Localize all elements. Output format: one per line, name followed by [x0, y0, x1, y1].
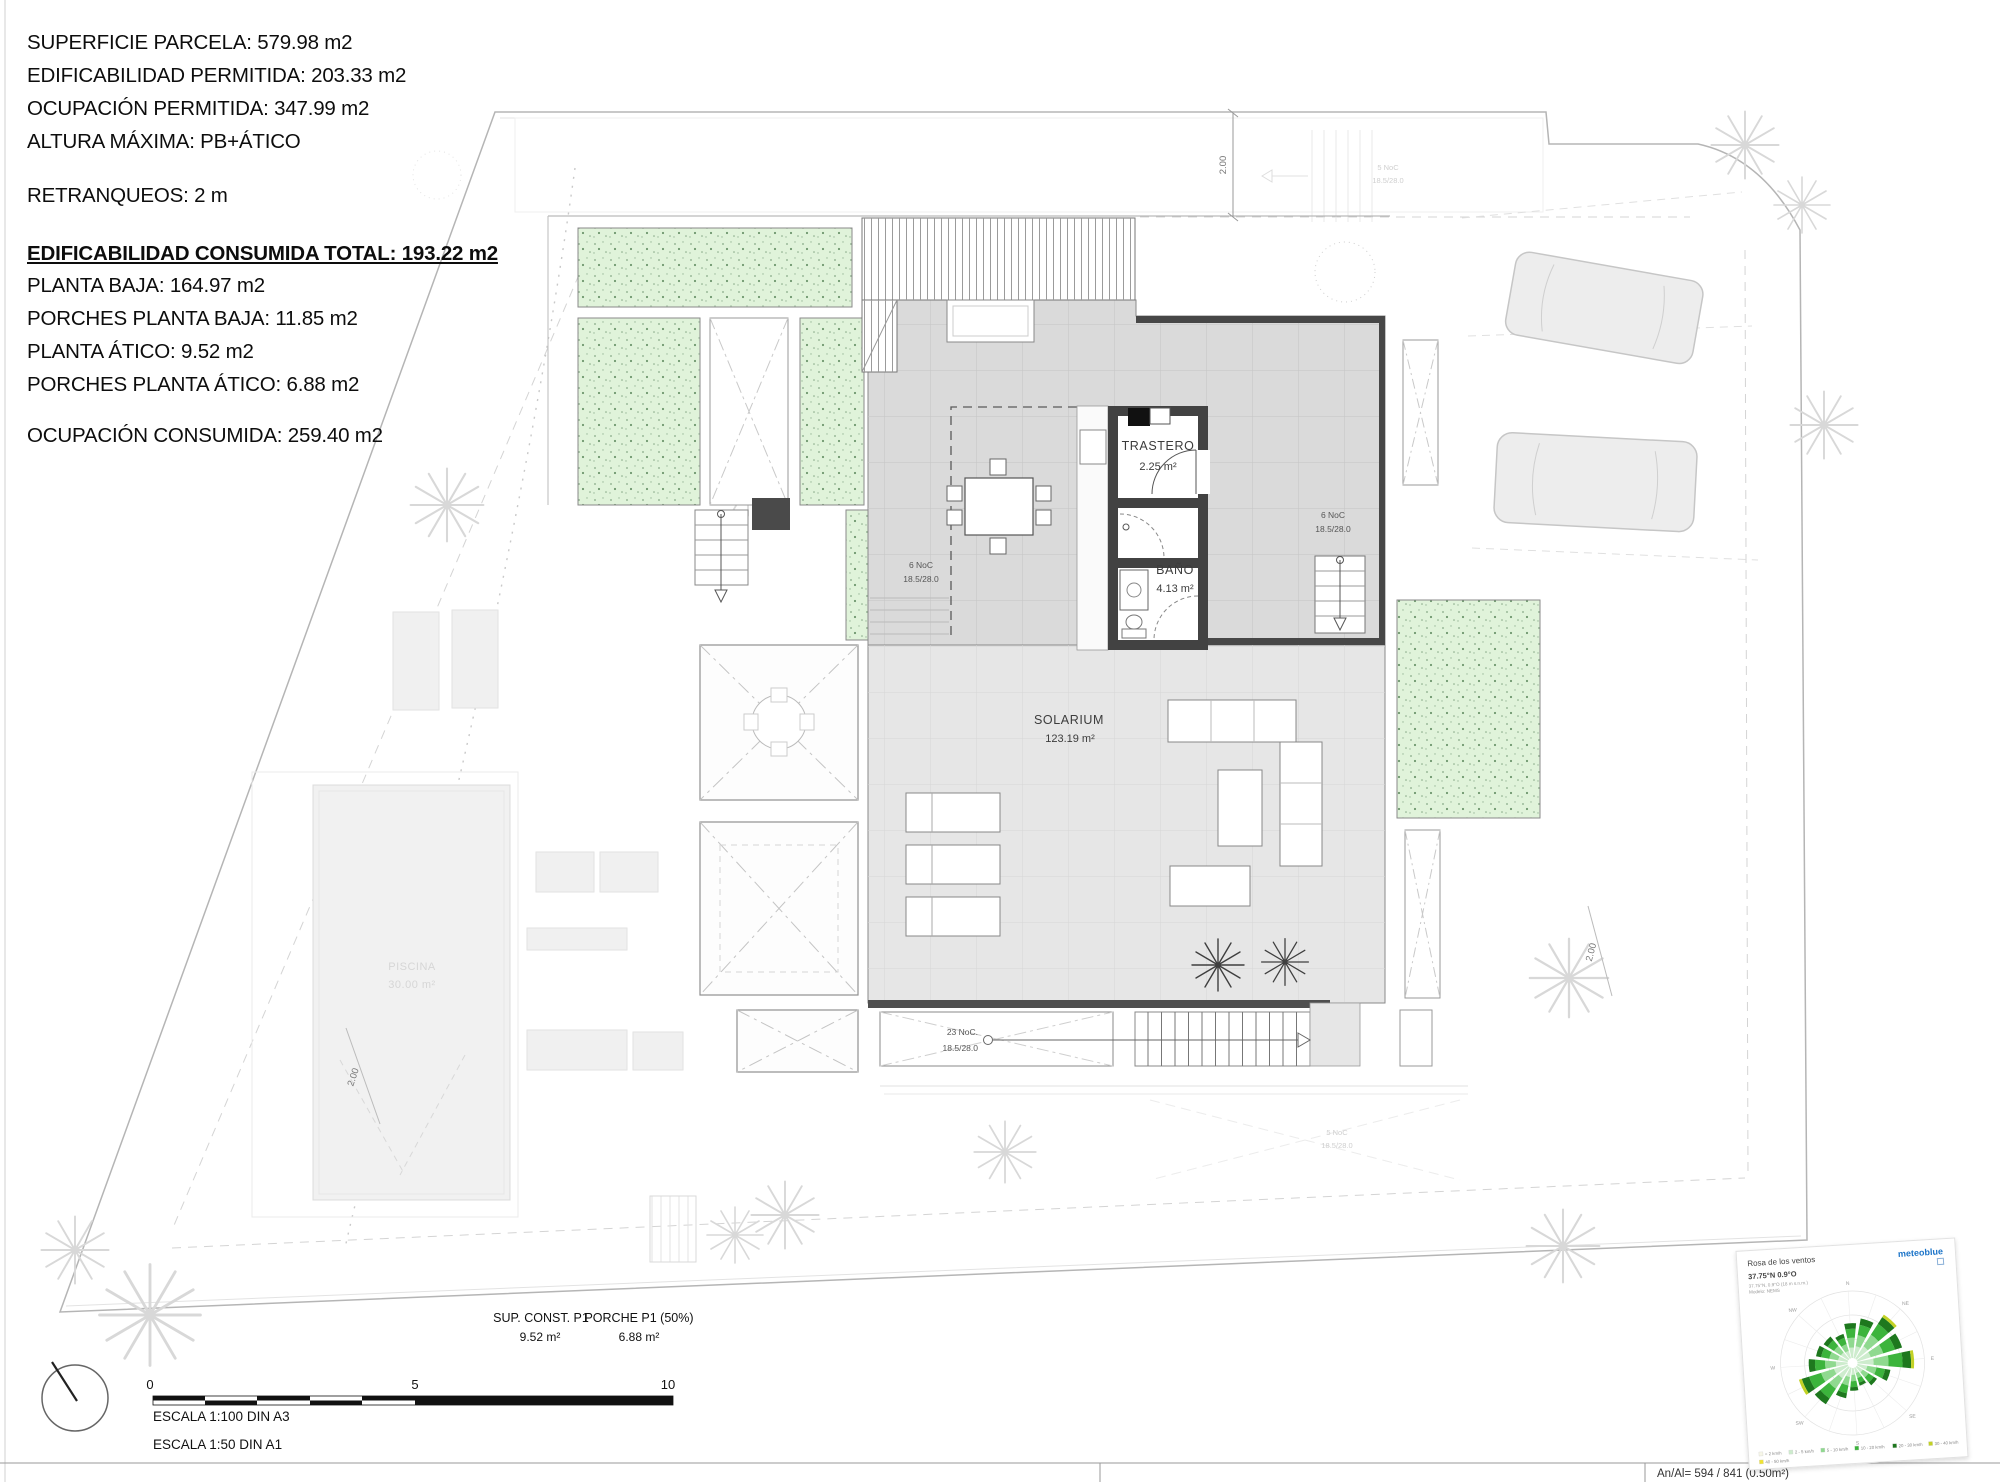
chimney-box [752, 498, 790, 530]
dim-label: 2.00 [1218, 156, 1229, 175]
round-table [752, 695, 806, 749]
info-line: PORCHES PLANTA BAJA: 11.85 m2 [27, 307, 358, 331]
info-line-total: EDIFICABILIDAD CONSUMIDA TOTAL: 193.22 m… [27, 242, 498, 266]
windrose-petal-band [1851, 1374, 1857, 1381]
planter [800, 318, 864, 505]
windrose-petal-band [1847, 1338, 1855, 1348]
trastero-label: TRASTERO [1122, 439, 1195, 453]
car [1493, 432, 1697, 532]
windrose-petal-band [1873, 1355, 1889, 1367]
windrose-coords: 37.75°N 0.9°O [1748, 1269, 1797, 1281]
info-line: PORCHES PLANTA ÁTICO: 6.88 m2 [27, 373, 359, 397]
stair-right [1315, 556, 1365, 633]
stair-left-steps-label: 6 NoC [909, 560, 933, 570]
escala-a1-label: ESCALA 1:50 DIN A1 [153, 1437, 282, 1452]
legend-label: 10 - 20 km/h [1861, 1444, 1886, 1450]
stair-right-riser-label: 18.5/28.0 [1315, 524, 1351, 534]
pool-area [252, 772, 518, 1217]
windrose-petal-band [1844, 1323, 1856, 1330]
ground-stair-steps-label: 5 NoC [1377, 163, 1399, 172]
car [1503, 250, 1705, 366]
planter [846, 510, 868, 640]
compass-label: SE [1909, 1414, 1917, 1420]
north-arrow-icon [42, 1362, 108, 1431]
legend-swatch [1893, 1444, 1897, 1448]
scale-tick-0: 0 [146, 1377, 153, 1392]
planter [578, 228, 852, 307]
escala-a3-label: ESCALA 1:100 DIN A3 [153, 1409, 290, 1424]
scale-tick-10: 10 [661, 1377, 675, 1392]
compass-label: N [1846, 1281, 1850, 1287]
room-trastero [1118, 416, 1198, 498]
stair-left [695, 510, 748, 602]
windrose-card: Rosa de los ventos meteoblue 37.75°N 0.9… [1735, 1237, 1968, 1470]
landing-strip [1077, 406, 1108, 650]
windrose-petal-band [1825, 1360, 1837, 1369]
legend-label: < 2 km/h [1765, 1450, 1782, 1456]
porche-value: 6.88 m² [619, 1330, 660, 1344]
shrub [413, 151, 461, 199]
legend-label: 5 - 10 km/h [1827, 1446, 1849, 1452]
atico-plan: TRASTERO 2.25 m² BAÑO 4.13 m² SOLARIUM 1… [346, 109, 1612, 1124]
solarium-area-label: 123.19 m² [1045, 733, 1095, 745]
bano-label: BAÑO [1156, 563, 1194, 577]
dining-table [965, 478, 1033, 535]
planter-walk-strip [710, 318, 788, 505]
legend-label: 30 - 40 km/h [1934, 1440, 1959, 1446]
planter [1397, 600, 1540, 818]
compass-label: E [1931, 1356, 1935, 1362]
windrose-petal-band [1845, 1328, 1856, 1338]
sup-const-value: 9.52 m² [520, 1330, 561, 1344]
legend-swatch [1759, 1452, 1763, 1456]
sun-loungers [906, 793, 1000, 936]
porche-label: PORCHE P1 (50%) [584, 1311, 693, 1325]
legend-swatch [1821, 1448, 1825, 1452]
bano-area-label: 4.13 m² [1156, 583, 1194, 595]
info-line: PLANTA BAJA: 164.97 m2 [27, 274, 265, 298]
solarium-parapet [868, 1000, 1330, 1008]
stair-right-steps-label: 6 NoC [1321, 510, 1345, 520]
stair-left-riser-label: 18.5/28.0 [903, 574, 939, 584]
info-line: SUPERFICIE PARCELA: 579.98 m2 [27, 31, 352, 55]
ground-stair-steps-label: 5 NoC [1326, 1128, 1348, 1137]
compass-label: S [1856, 1440, 1860, 1446]
hatched-pad [650, 1196, 696, 1262]
pergola-box [700, 822, 858, 995]
windrose-petal-band [1850, 1387, 1859, 1391]
legend-label: 20 - 30 km/h [1899, 1442, 1924, 1448]
wall [1379, 316, 1385, 645]
info-line: EDIFICABILIDAD PERMITIDA: 203.33 m2 [27, 64, 406, 88]
compass-label: NW [1788, 1308, 1797, 1315]
stair-bottom-riser-label: 18.5/28.0 [943, 1043, 979, 1053]
stair-bottom-steps-label: 23 NoC. [947, 1027, 978, 1037]
windrose-petals [1795, 1313, 1916, 1406]
trastero-area-label: 2.25 m² [1139, 461, 1177, 473]
info-line: OCUPACIÓN CONSUMIDA: 259.40 m2 [27, 424, 383, 448]
solarium-label: SOLARIUM [1034, 713, 1104, 727]
site-plan-drawing: PISCINA 30.00 m² 5 NoC 18.5/28.0 5 NoC 1… [0, 0, 2000, 1482]
legend-swatch [1759, 1460, 1763, 1464]
windrose-title: Rosa de los ventos [1747, 1255, 1815, 1268]
ground-stair-riser-label: 18.5/28.0 [1372, 176, 1403, 185]
info-line: RETRANQUEOS: 2 m [27, 184, 228, 208]
sheet-footer: An/Al= 594 / 841 (0.50m²) [0, 1463, 2000, 1482]
logo-grid-icon [1937, 1258, 1943, 1264]
meteoblue-logo: meteoblue [1898, 1246, 1944, 1259]
ground-stair-top [1262, 130, 1372, 222]
sup-const-label: SUP. CONST. P1 [493, 1311, 589, 1325]
windrose-petal-band [1901, 1351, 1911, 1369]
legend-swatch [1855, 1446, 1859, 1450]
core-niche [1128, 408, 1150, 426]
windrose-chart: Rosa de los ventos meteoblue 37.75°N 0.9… [1737, 1239, 1968, 1470]
info-line: PLANTA ÁTICO: 9.52 m2 [27, 340, 254, 364]
wall [1136, 316, 1385, 323]
scale-bar: 0 5 10 ESCALA 1:100 DIN A3 ESCALA 1:50 D… [146, 1377, 675, 1452]
dim-label: 2.00 [1584, 942, 1599, 963]
pergola-box [700, 645, 858, 800]
compass-label: W [1770, 1366, 1775, 1372]
compass-label: SW [1795, 1420, 1804, 1426]
planter [578, 318, 700, 505]
compass-label: NE [1902, 1301, 1910, 1307]
legend-label: 2 - 5 km/h [1795, 1448, 1815, 1454]
dimension-top-right: 2.00 [1218, 109, 1238, 221]
legend-swatch [1928, 1441, 1932, 1445]
shrub [1315, 242, 1375, 302]
core-duct [1150, 408, 1170, 424]
info-line: OCUPACIÓN PERMITIDA: 347.99 m2 [27, 97, 369, 121]
toilet [1126, 615, 1142, 629]
windrose-sub2: Modelo: NEMS [1749, 1288, 1780, 1295]
windrose-petal-band [1815, 1359, 1826, 1371]
pool-label: PISCINA [388, 961, 436, 973]
legend-swatch [1789, 1450, 1793, 1454]
dimension-right: 2.00 [1584, 906, 1612, 996]
windrose-petal-band [1808, 1359, 1815, 1372]
pool-area-label: 30.00 m² [388, 979, 435, 991]
info-line: ALTURA MÁXIMA: PB+ÁTICO [27, 130, 301, 154]
coffee-table [1218, 770, 1262, 846]
ground-stair-riser-label: 18.5/28.0 [1321, 1141, 1352, 1150]
windrose-petal-band [1850, 1381, 1858, 1388]
floor-plan-sheet: PISCINA 30.00 m² 5 NoC 18.5/28.0 5 NoC 1… [0, 0, 2000, 1482]
windrose-petal-band [1888, 1352, 1903, 1368]
scale-tick-5: 5 [411, 1377, 418, 1392]
pergola-box [737, 1010, 858, 1072]
legend-label: 40 - 50 km/h [1765, 1458, 1790, 1464]
bathroom-counter [1120, 570, 1148, 610]
title-annotations: SUP. CONST. P1 9.52 m² PORCHE P1 (50%) 6… [493, 1311, 693, 1344]
